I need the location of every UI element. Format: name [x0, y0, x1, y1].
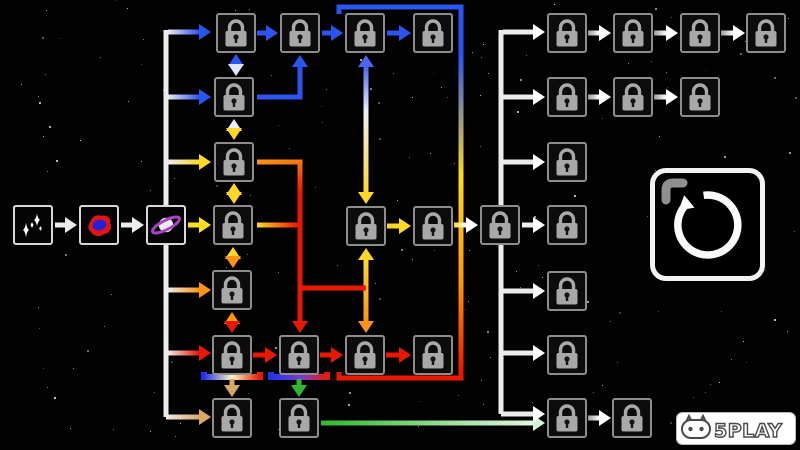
level-node-L1-1[interactable] [216, 13, 256, 53]
level-node-R1-4[interactable] [746, 13, 786, 53]
level-node-L7-2[interactable] [279, 398, 319, 438]
padlock-icon [415, 15, 451, 51]
padlock-icon [214, 337, 250, 373]
padlock-icon [214, 272, 250, 308]
padlock-icon [549, 15, 585, 51]
restart-circular-arrow-icon [655, 173, 760, 276]
padlock-icon [216, 79, 252, 115]
padlock-icon [415, 337, 451, 373]
stars-icon [15, 207, 51, 243]
padlock-icon [549, 144, 585, 180]
padlock-icon [281, 337, 317, 373]
padlock-icon [682, 15, 718, 51]
padlock-icon [282, 15, 318, 51]
nebula-icon [81, 207, 117, 243]
padlock-icon [549, 79, 585, 115]
level-node-L3-1[interactable] [214, 142, 254, 182]
level-node-L4-1[interactable] [213, 205, 253, 245]
padlock-icon [347, 337, 383, 373]
padlock-icon [549, 273, 585, 309]
level-node-start-stars[interactable] [13, 205, 53, 245]
level-node-R3-1[interactable] [547, 142, 587, 182]
padlock-icon [549, 400, 585, 436]
level-node-start-planet[interactable] [146, 205, 186, 245]
watermark-label: 5PLAY [714, 420, 782, 442]
padlock-icon [348, 208, 384, 244]
restart-button[interactable] [650, 168, 765, 281]
padlock-icon [218, 15, 254, 51]
padlock-icon [214, 400, 250, 436]
padlock-icon [215, 207, 251, 243]
padlock-icon [615, 15, 651, 51]
level-node-R2-3[interactable] [680, 77, 720, 117]
padlock-icon [281, 400, 317, 436]
level-node-start-nebula[interactable] [79, 205, 119, 245]
level-node-R1-2[interactable] [613, 13, 653, 53]
padlock-icon [216, 144, 252, 180]
level-node-R6-1[interactable] [547, 335, 587, 375]
level-node-L1-4[interactable] [413, 13, 453, 53]
level-node-L4-3[interactable] [413, 206, 453, 246]
level-node-R4-1[interactable] [547, 205, 587, 245]
level-node-L4-2[interactable] [346, 206, 386, 246]
level-node-L7-1[interactable] [212, 398, 252, 438]
padlock-icon [482, 207, 518, 243]
level-node-L5-1[interactable] [212, 270, 252, 310]
level-node-L6-3[interactable] [345, 335, 385, 375]
padlock-icon [615, 79, 651, 115]
padlock-icon [549, 207, 585, 243]
level-node-L1-2[interactable] [280, 13, 320, 53]
level-node-R2-1[interactable] [547, 77, 587, 117]
watermark-5play: 5PLAY [676, 412, 796, 445]
level-node-R7-1[interactable] [547, 398, 587, 438]
level-node-L6-2[interactable] [279, 335, 319, 375]
padlock-icon [415, 208, 451, 244]
ringed-planet-icon [148, 207, 184, 243]
level-node-R1-1[interactable] [547, 13, 587, 53]
level-node-L6-4[interactable] [413, 335, 453, 375]
level-node-L4-4[interactable] [480, 205, 520, 245]
level-select-screen: 5PLAY [0, 0, 800, 450]
padlock-icon [347, 15, 383, 51]
padlock-icon [549, 337, 585, 373]
padlock-icon [614, 400, 650, 436]
level-node-R7-2[interactable] [612, 398, 652, 438]
level-node-R2-2[interactable] [613, 77, 653, 117]
level-node-L6-1[interactable] [212, 335, 252, 375]
padlock-icon [682, 79, 718, 115]
level-node-L2-1[interactable] [214, 77, 254, 117]
level-node-R1-3[interactable] [680, 13, 720, 53]
level-node-L1-3[interactable] [345, 13, 385, 53]
corner-mark [666, 183, 683, 200]
padlock-icon [748, 15, 784, 51]
level-node-R5-1[interactable] [547, 271, 587, 311]
